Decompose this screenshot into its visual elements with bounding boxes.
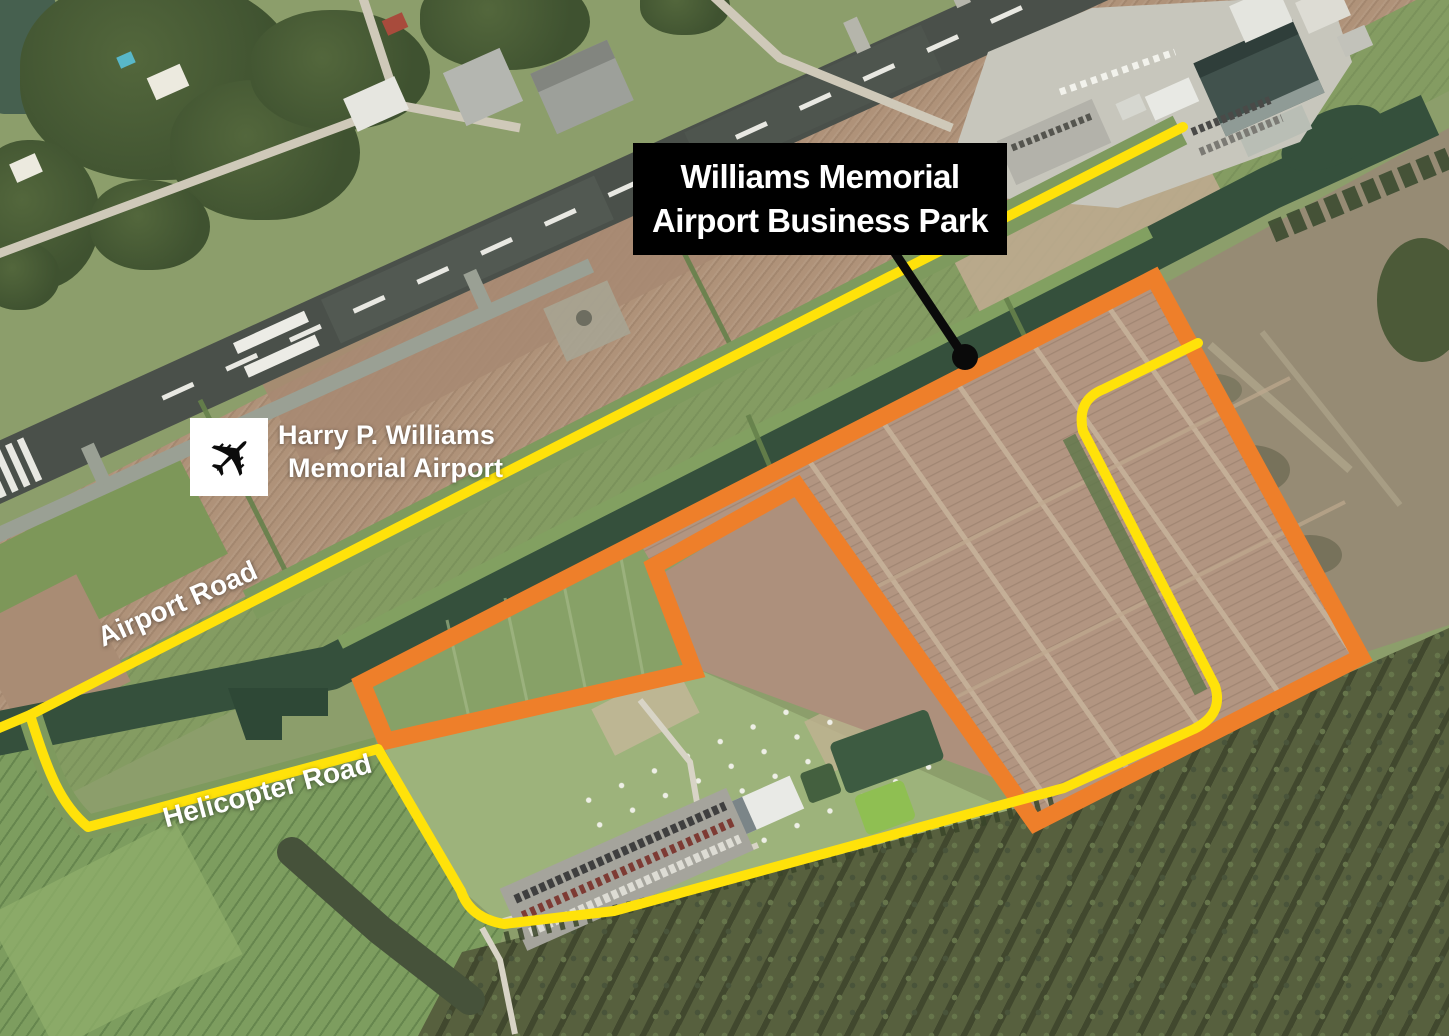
airplane-icon: ✈ bbox=[191, 416, 273, 498]
l-pond bbox=[228, 688, 328, 740]
tree-line bbox=[292, 852, 470, 1000]
title-line2: Airport Business Park bbox=[641, 199, 999, 243]
parking-lot bbox=[500, 788, 754, 951]
airport-name-label: Harry P. Williams Memorial Airport bbox=[278, 419, 503, 485]
title-line1: Williams Memorial bbox=[641, 155, 999, 199]
airplane-icon-box: ✈ bbox=[190, 418, 268, 496]
pointer-dot bbox=[952, 344, 978, 370]
perimeter-road bbox=[0, 0, 520, 255]
airport-name-line1: Harry P. Williams bbox=[278, 419, 503, 452]
airport-name-line2: Memorial Airport bbox=[288, 452, 503, 485]
aerial-map: Williams Memorial Airport Business Park … bbox=[0, 0, 1449, 1036]
business-park-label: Williams Memorial Airport Business Park bbox=[633, 143, 1007, 255]
